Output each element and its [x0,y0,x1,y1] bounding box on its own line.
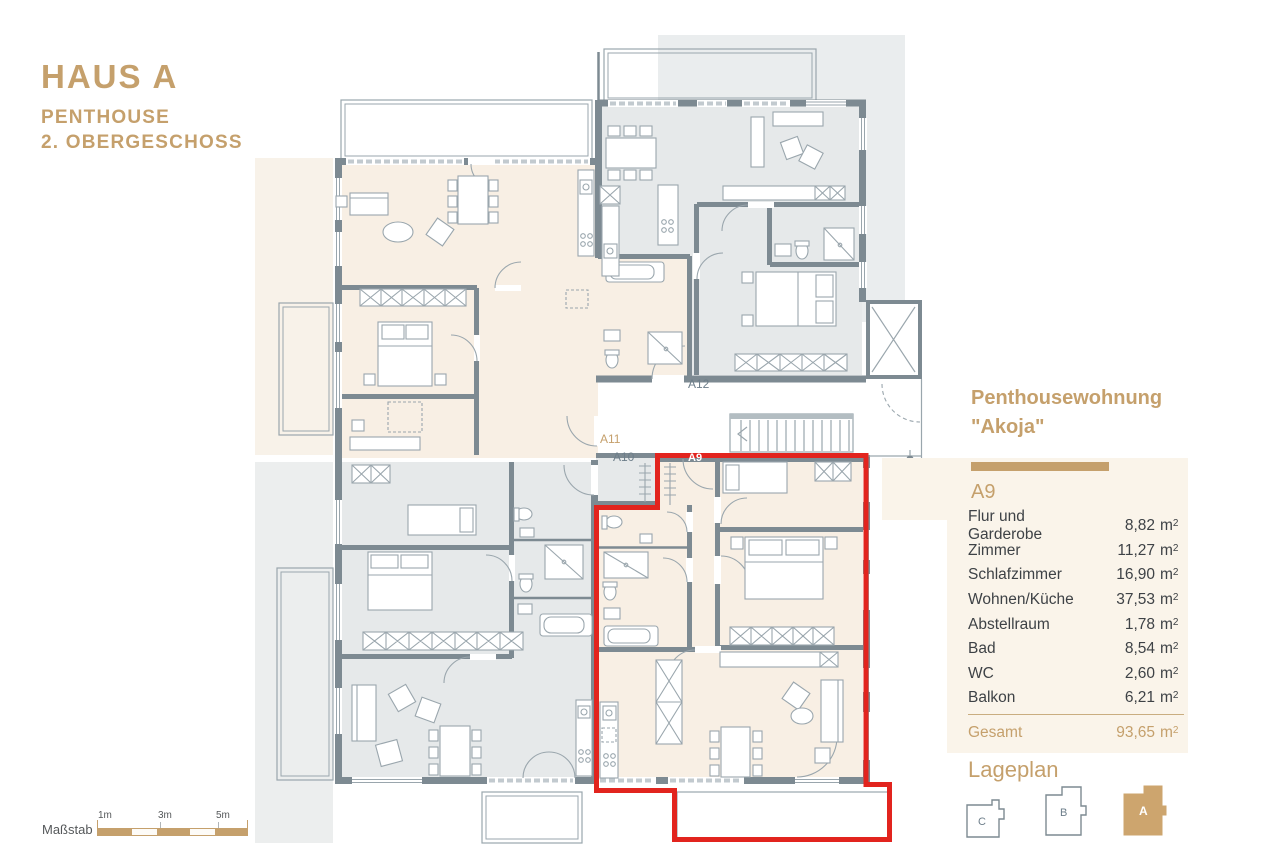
scale-tick-5m: 5m [216,810,230,821]
total-label: Gesamt [968,724,1103,742]
room-row: Abstellraum1,78m2 [968,612,1184,637]
room-label: Wohnen/Küche [968,591,1103,609]
panel-heading-line1: Penthousewohnung [971,384,1162,412]
a10-entry-pocket [596,457,657,505]
room-label: WC [968,665,1103,683]
room-area: 8,82 [1103,517,1155,535]
scale-tick-1m: 1m [98,810,112,821]
scale-mid-tick [218,822,219,828]
scale-segment [215,828,247,836]
gold-accent-bar [971,462,1109,471]
room-row: Schlafzimmer16,90m2 [968,563,1184,588]
scale-segment [98,828,132,836]
room-row: Bad8,54m2 [968,637,1184,662]
room-area: 6,21 [1103,689,1155,707]
room-label: Abstellraum [968,616,1103,634]
room-row: Flur und Garderobe8,82m2 [968,514,1184,539]
label-a11: A11 [600,432,621,446]
label-a9: A9 [688,452,702,464]
room-label: Schlafzimmer [968,566,1103,584]
scale-mid-tick [160,822,161,828]
room-row: Wohnen/Küche37,53m2 [968,588,1184,613]
room-unit: m2 [1155,517,1184,535]
room-row: Zimmer11,27m2 [968,539,1184,564]
scale-segment [157,828,190,836]
total-row: Gesamt93,65m2 [968,724,1184,742]
room-label: Flur und Garderobe [968,508,1103,544]
room-unit: m2 [1155,616,1184,634]
scale-segment [132,828,157,836]
lageplan-building-b: B [1045,786,1087,837]
room-label: Bad [968,640,1103,658]
room-unit: m2 [1155,689,1184,707]
scale-tick-3m: 3m [158,810,172,821]
building-c-label: C [978,816,986,828]
total-unit: m2 [1155,724,1184,742]
room-unit: m2 [1155,640,1184,658]
scale-segment [190,828,215,836]
room-area: 2,60 [1103,665,1155,683]
unit-id: A9 [971,481,995,504]
label-a12: A12 [688,377,710,391]
room-area: 37,53 [1103,591,1155,609]
label-a10: A10 [613,450,635,464]
room-table: Flur und Garderobe8,82m2 Zimmer11,27m2 S… [968,514,1184,742]
lageplan-building-c: C [966,799,1010,839]
room-unit: m2 [1155,566,1184,584]
scale-label: Maßstab [42,822,93,837]
room-row: Balkon6,21m2 [968,686,1184,711]
total-area: 93,65 [1103,724,1155,742]
room-area: 8,54 [1103,640,1155,658]
room-unit: m2 [1155,591,1184,609]
a9-balcony [677,792,888,838]
room-unit: m2 [1155,542,1184,560]
panel-background-left [882,458,948,520]
room-area: 16,90 [1103,566,1155,584]
room-label: Zimmer [968,542,1103,560]
brochure-page: HAUS A PENTHOUSE 2. OBERGESCHOSS [0,0,1261,865]
panel-heading-line2: "Akoja" [971,413,1044,441]
total-divider [968,714,1184,715]
room-area: 11,27 [1103,542,1155,560]
room-row: WC2,60m2 [968,662,1184,687]
lageplan-heading: Lageplan [968,757,1059,783]
lageplan-building-a: A [1123,785,1167,837]
building-b-label: B [1060,807,1067,819]
scale-end-tick [97,820,98,836]
building-a-label: A [1139,804,1148,818]
elevator [868,302,920,377]
room-unit: m2 [1155,665,1184,683]
scale-end-tick [247,820,248,836]
room-label: Balkon [968,689,1103,707]
room-area: 1,78 [1103,616,1155,634]
